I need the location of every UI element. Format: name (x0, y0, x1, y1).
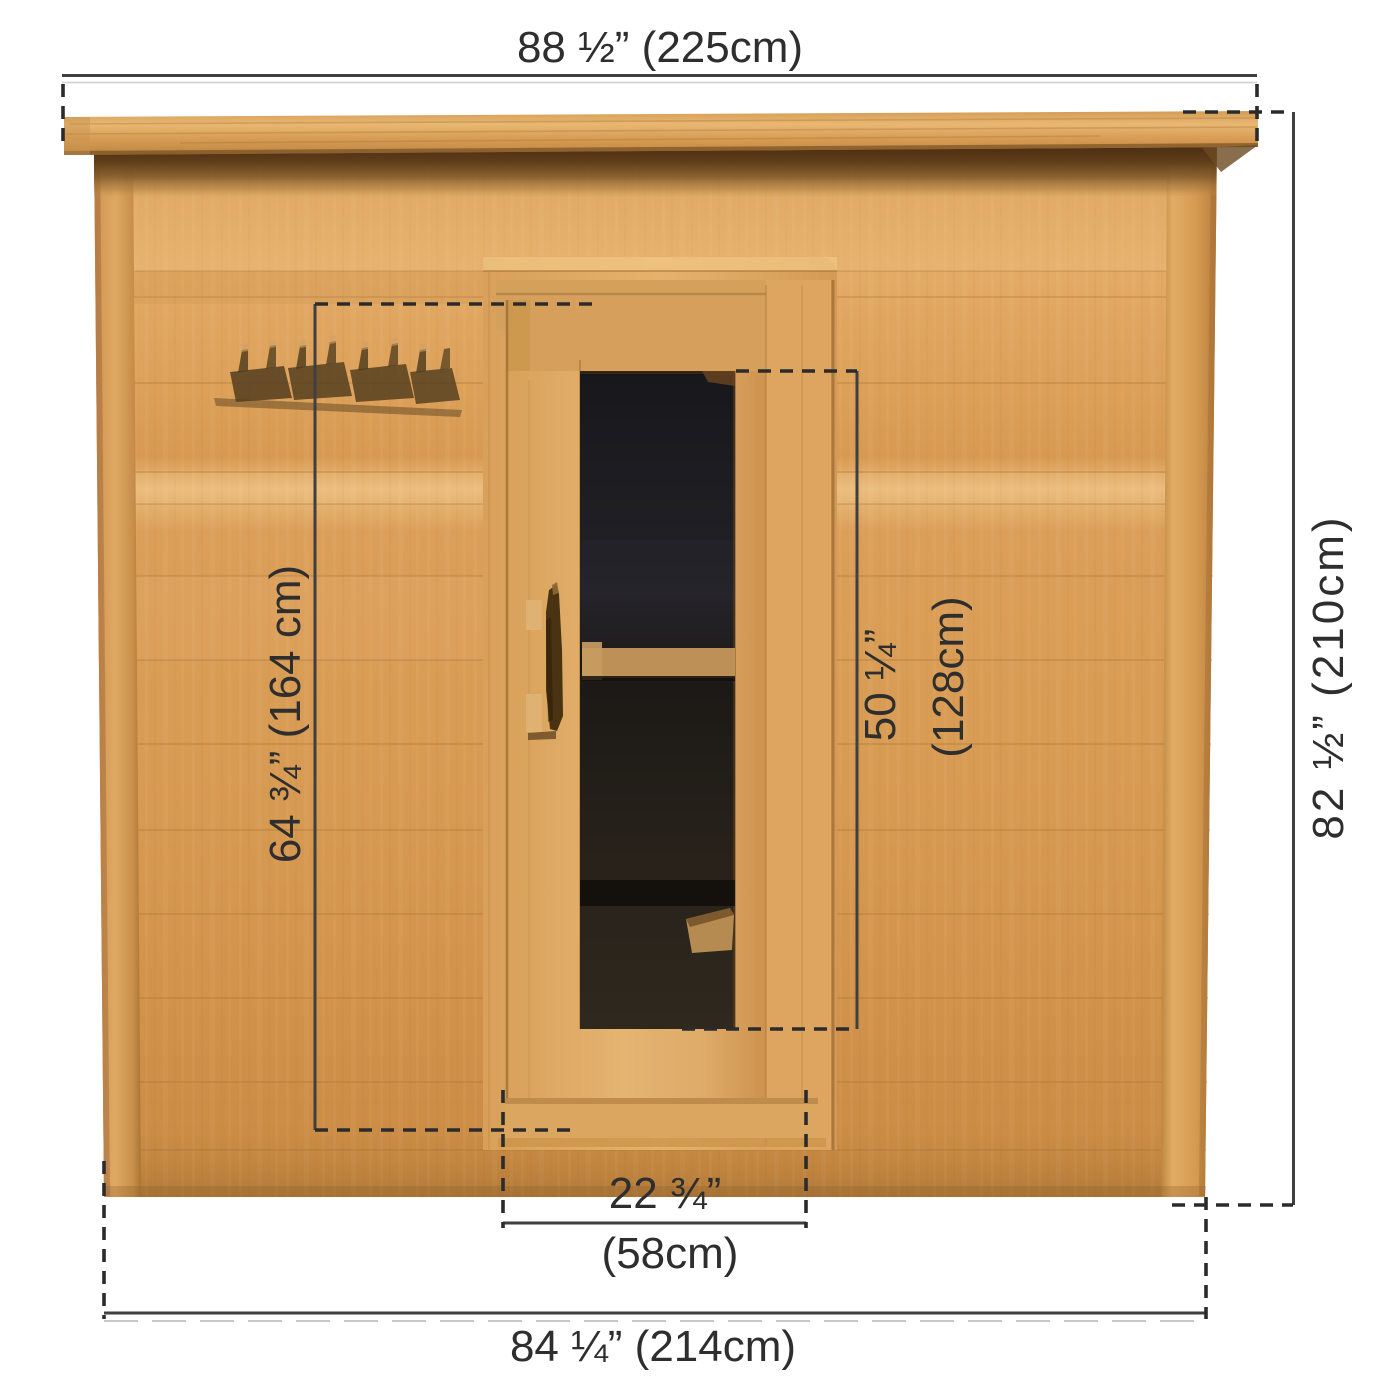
svg-text:22 ¾”: 22 ¾” (609, 1169, 722, 1218)
svg-text:50 ¼”: 50 ¼” (856, 629, 905, 742)
svg-text:64 ¾” (164 cm): 64 ¾” (164 cm) (261, 565, 310, 863)
svg-text:(128cm): (128cm) (924, 596, 973, 757)
svg-text:(58cm): (58cm) (602, 1229, 739, 1278)
svg-text:88 ½” (225cm): 88 ½” (225cm) (517, 23, 803, 72)
svg-text:84 ¼” (214cm): 84 ¼” (214cm) (510, 1322, 796, 1371)
svg-text:82 ½” (210cm): 82 ½” (210cm) (1304, 514, 1353, 839)
